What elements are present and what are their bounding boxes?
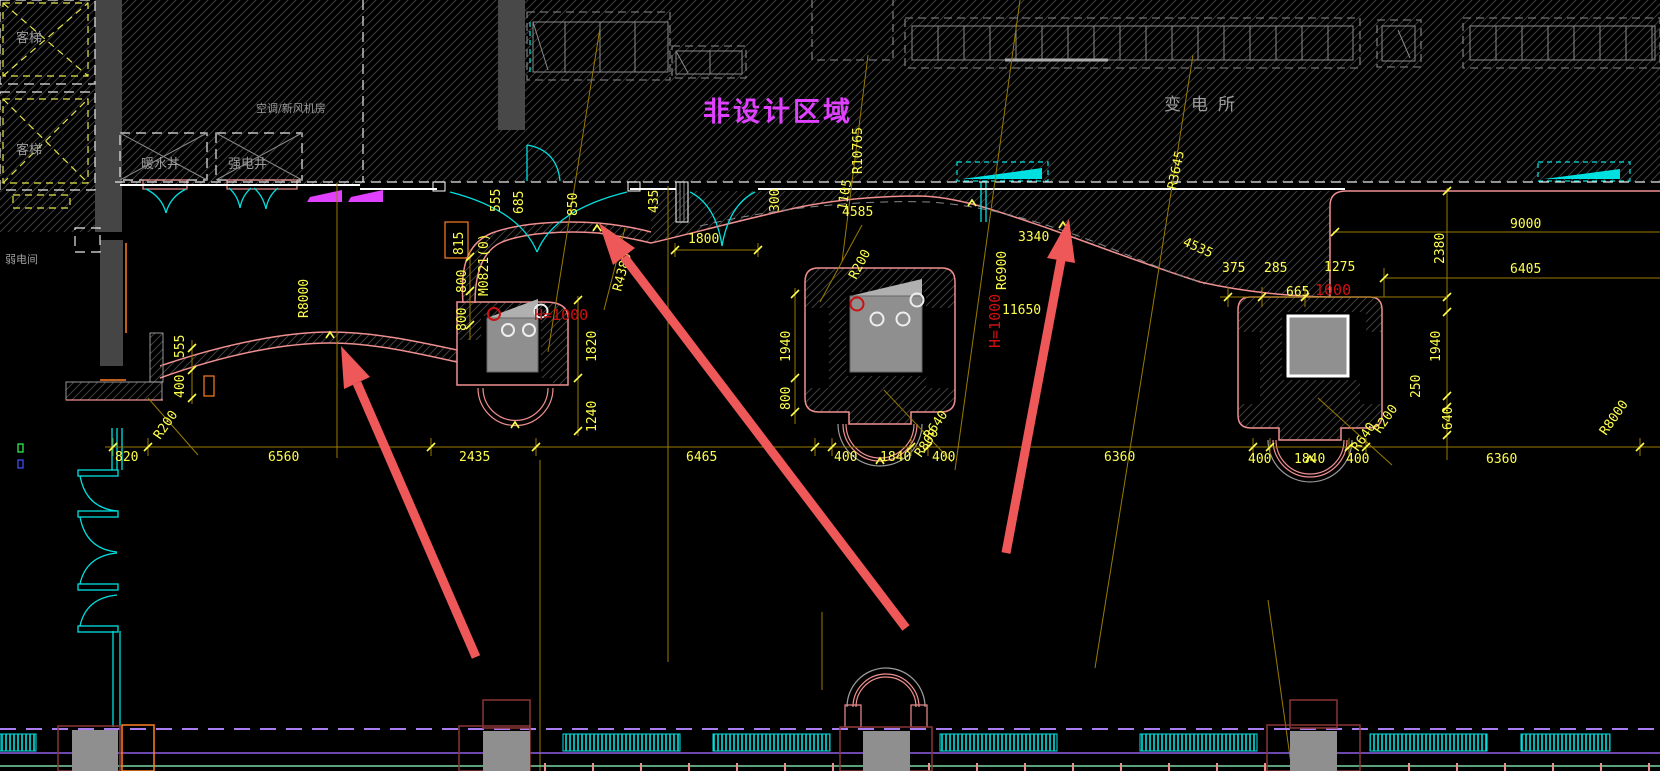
- label-strong-power-shaft: 强电井: [228, 157, 267, 172]
- dim-850: 850: [566, 193, 581, 216]
- dim-6465: 6465: [686, 450, 717, 465]
- wall-block: [100, 240, 123, 366]
- dim-r10765: R10765: [851, 127, 866, 174]
- dim-400-3: 400: [1248, 452, 1271, 467]
- structural-column: [1288, 316, 1348, 376]
- dim-375: 375: [1222, 261, 1245, 276]
- dim-h1000-col2: H=1000: [986, 294, 1004, 348]
- label-hot-water-shaft: 暖水井: [141, 157, 180, 172]
- dim-800-col2: 800: [779, 387, 794, 410]
- dim-r6900: R6900: [995, 251, 1010, 290]
- label-elevator-1: 客梯: [16, 30, 42, 46]
- dim-r8000: R8000: [297, 279, 312, 318]
- label-ahu-room: 空调/新风机房: [256, 101, 326, 115]
- dim-9000: 9000: [1510, 217, 1541, 232]
- wall-pier-solid: [498, 0, 525, 130]
- dim-685: 685: [512, 191, 527, 214]
- floor-plan-canvas[interactable]: 客梯 客梯 弱电间 空调/新风机房 暖水井 强电井 变电所 非设计区域 820 …: [0, 0, 1660, 771]
- dim-665: 665: [1286, 285, 1309, 300]
- dim-1240: 1240: [585, 401, 600, 432]
- equipment-block-2: [850, 296, 922, 372]
- dim-435: 435: [647, 190, 662, 213]
- dim-820: 820: [115, 450, 138, 465]
- dim-4585: 4585: [842, 205, 873, 220]
- dim-1840-2: 1840: [1294, 452, 1325, 467]
- dim-400-left: 400: [173, 375, 188, 398]
- dim-800-2: 800: [455, 308, 470, 331]
- dim-1820: 1820: [585, 331, 600, 362]
- dim-1000-red: 1000: [1315, 281, 1351, 299]
- label-elevator-2: 客梯: [16, 142, 42, 158]
- dim-1940-col3: 1940: [1429, 331, 1444, 362]
- dim-1275: 1275: [1324, 260, 1355, 275]
- dim-3340: 3340: [1018, 230, 1049, 245]
- dim-285: 285: [1264, 261, 1287, 276]
- dim-1940-col2: 1940: [779, 331, 794, 362]
- dim-11650: 11650: [1002, 303, 1041, 318]
- dim-6360-1: 6360: [1104, 450, 1135, 465]
- dim-6560: 6560: [268, 450, 299, 465]
- label-weak-power-room: 弱电间: [5, 253, 38, 266]
- dim-555: 555: [489, 189, 504, 212]
- dim-555-left: 555: [173, 335, 188, 358]
- door-tag-m0821: M0821(0): [477, 233, 492, 296]
- dim-2380: 2380: [1433, 233, 1448, 264]
- dim-800-1: 800: [455, 270, 470, 293]
- dim-6405: 6405: [1510, 262, 1541, 277]
- dim-400-1: 400: [834, 450, 857, 465]
- label-non-design-area: 非设计区域: [703, 97, 853, 128]
- wall-block: [95, 0, 122, 232]
- dim-640: 640: [1441, 407, 1456, 430]
- dim-1800: 1800: [688, 232, 719, 247]
- dim-h1000-col1: H=1000: [534, 306, 588, 324]
- dim-250: 250: [1409, 375, 1424, 398]
- dim-1840-1: 1840: [880, 450, 911, 465]
- dim-300: 300: [768, 189, 783, 212]
- dim-2435: 2435: [459, 450, 490, 465]
- dim-400-2: 400: [932, 450, 955, 465]
- dim-6360-2: 6360: [1486, 452, 1517, 467]
- cad-floor-plan-screenshot: 客梯 客梯 弱电间 空调/新风机房 暖水井 强电井 变电所 非设计区域 820 …: [0, 0, 1660, 771]
- label-substation: 变电所: [1164, 95, 1245, 115]
- dim-400-4: 400: [1346, 452, 1369, 467]
- dim-815: 815: [452, 232, 467, 255]
